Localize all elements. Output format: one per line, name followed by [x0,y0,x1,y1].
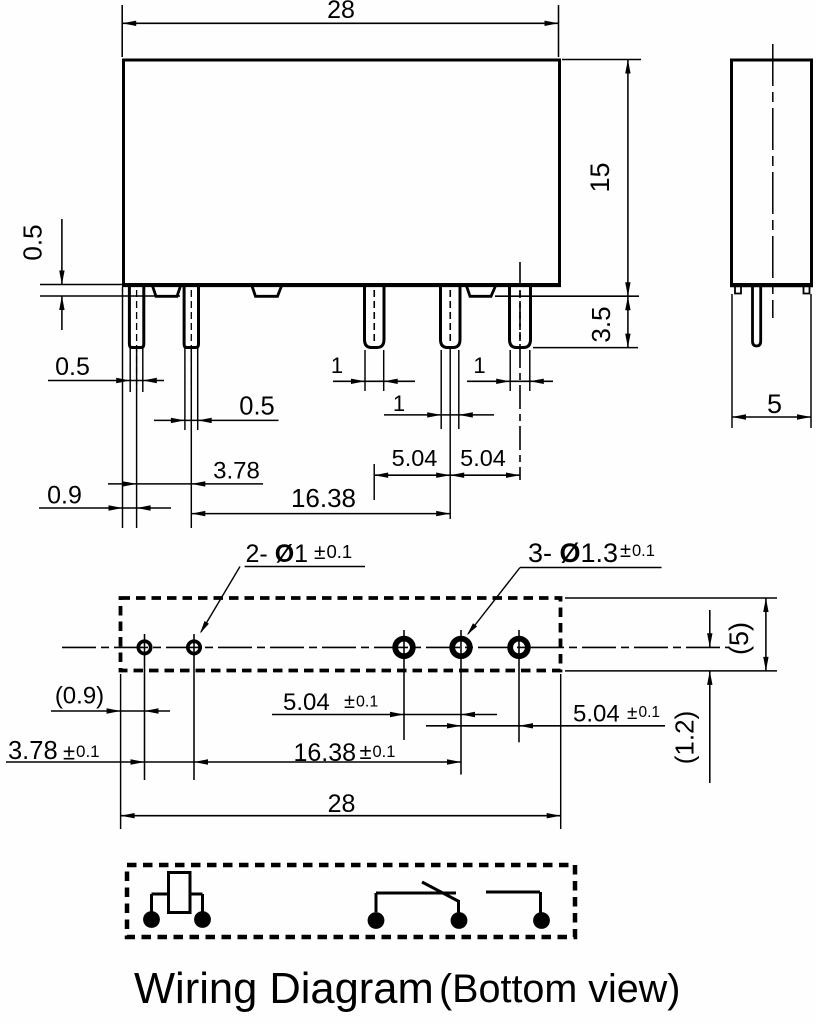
svg-text:0.5: 0.5 [55,353,90,381]
svg-text:28: 28 [328,790,356,818]
svg-text:3.78: 3.78 [213,458,260,485]
svg-text:5.04: 5.04 [283,689,330,716]
svg-text:±: ± [620,540,631,562]
svg-text:0.5: 0.5 [239,393,274,421]
svg-text:0.1: 0.1 [639,704,661,721]
svg-text:±: ± [314,541,326,564]
svg-text:±: ± [63,740,75,765]
svg-text:3.78: 3.78 [8,737,58,765]
svg-text:0.5: 0.5 [18,224,48,260]
svg-text:±: ± [344,691,355,713]
svg-text:5.04: 5.04 [573,701,620,728]
svg-text:5: 5 [767,389,782,419]
svg-text:0.1: 0.1 [327,541,353,562]
svg-text:3.5: 3.5 [586,306,616,342]
svg-text:16.38: 16.38 [294,739,357,767]
svg-text:5.04: 5.04 [460,445,506,471]
svg-text:3- Ø1.3: 3- Ø1.3 [528,538,618,568]
svg-text:1: 1 [393,391,405,416]
svg-text:0.1: 0.1 [632,542,655,560]
svg-text:28: 28 [327,0,355,24]
svg-text:2- Ø1: 2- Ø1 [246,540,309,568]
svg-text:0.1: 0.1 [356,694,378,711]
svg-text:±: ± [360,739,372,764]
svg-text:15: 15 [585,162,615,192]
svg-text:0.9: 0.9 [47,482,82,510]
svg-text:1: 1 [473,353,485,378]
svg-text:1: 1 [331,353,343,378]
svg-text:(Bottom view): (Bottom view) [439,967,680,1011]
svg-text:(5): (5) [724,622,754,655]
svg-text:5.04: 5.04 [392,445,438,471]
svg-text:±: ± [627,703,637,724]
svg-text:0.1: 0.1 [373,743,396,761]
svg-text:Wiring Diagram: Wiring Diagram [134,965,434,1013]
svg-text:0.1: 0.1 [76,742,100,761]
svg-text:16.38: 16.38 [291,483,356,513]
svg-text:(0.9): (0.9) [55,683,104,710]
svg-text:(1.2): (1.2) [670,711,700,764]
